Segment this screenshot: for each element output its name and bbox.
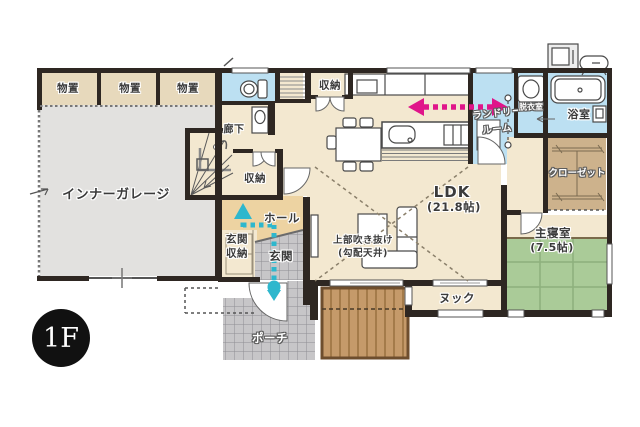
nook-window <box>438 310 483 317</box>
heat-pump-icon <box>548 44 578 71</box>
deck-floor <box>322 288 408 358</box>
washbasin-icon <box>252 107 268 133</box>
room-label-entrance-storage-2: 収納 <box>226 246 248 261</box>
room-label-dressing: 脱衣室 <box>519 102 543 113</box>
bedroom-window <box>607 244 612 284</box>
room-label-entrance: 玄関 <box>269 248 293 264</box>
room-label-entrance-storage-1: 玄関 <box>226 232 248 247</box>
bath-washstand-icon <box>593 106 606 122</box>
room-label-stair-storage: 収納 <box>244 171 266 186</box>
room-label-garage: インナーガレージ <box>62 184 170 203</box>
nook-side-window <box>405 287 412 305</box>
floor-plan-drawing <box>0 0 640 427</box>
toilet-icon <box>241 80 268 98</box>
room-label-porch: ポーチ <box>252 330 288 346</box>
toilet-window <box>232 68 268 73</box>
bedroom-window-3 <box>592 310 604 317</box>
floor-badge: 1F <box>32 309 90 367</box>
tv-icon <box>311 215 318 257</box>
room-label-ldk-size: (21.8帖) <box>427 199 481 215</box>
hallway-floor <box>507 137 543 213</box>
kitchen-window <box>387 68 470 73</box>
laundry-window <box>476 68 512 73</box>
bedroom-window-2 <box>508 310 524 317</box>
kitchen-back-counter <box>345 74 469 95</box>
washing-machine-icon <box>518 76 544 102</box>
room-label-storage-a: 物置 <box>57 81 79 96</box>
stove-icon <box>444 125 470 145</box>
bathtub-icon <box>551 76 605 103</box>
room-label-storage-b: 物置 <box>119 81 141 96</box>
room-label-closet: クローゼット <box>548 165 605 179</box>
room-label-ldk-storage: 収納 <box>319 78 341 93</box>
room-label-storage-c: 物置 <box>177 81 199 96</box>
label-void-above: 上部吹き抜け <box>333 232 393 246</box>
floor-plan: 物置 物置 物置 インナーガレージ 廊下 収納 収納 玄関 収納 ホール 玄関 … <box>0 0 640 427</box>
room-label-bedroom-size: (7.5帖) <box>530 239 574 255</box>
room-label-nook: ヌック <box>439 290 475 306</box>
room-label-bath: 浴室 <box>568 106 591 122</box>
room-label-corridor: 廊下 <box>224 121 245 136</box>
room-label-hall: ホール <box>264 210 300 226</box>
label-void-ceiling: (勾配天井) <box>338 245 388 259</box>
